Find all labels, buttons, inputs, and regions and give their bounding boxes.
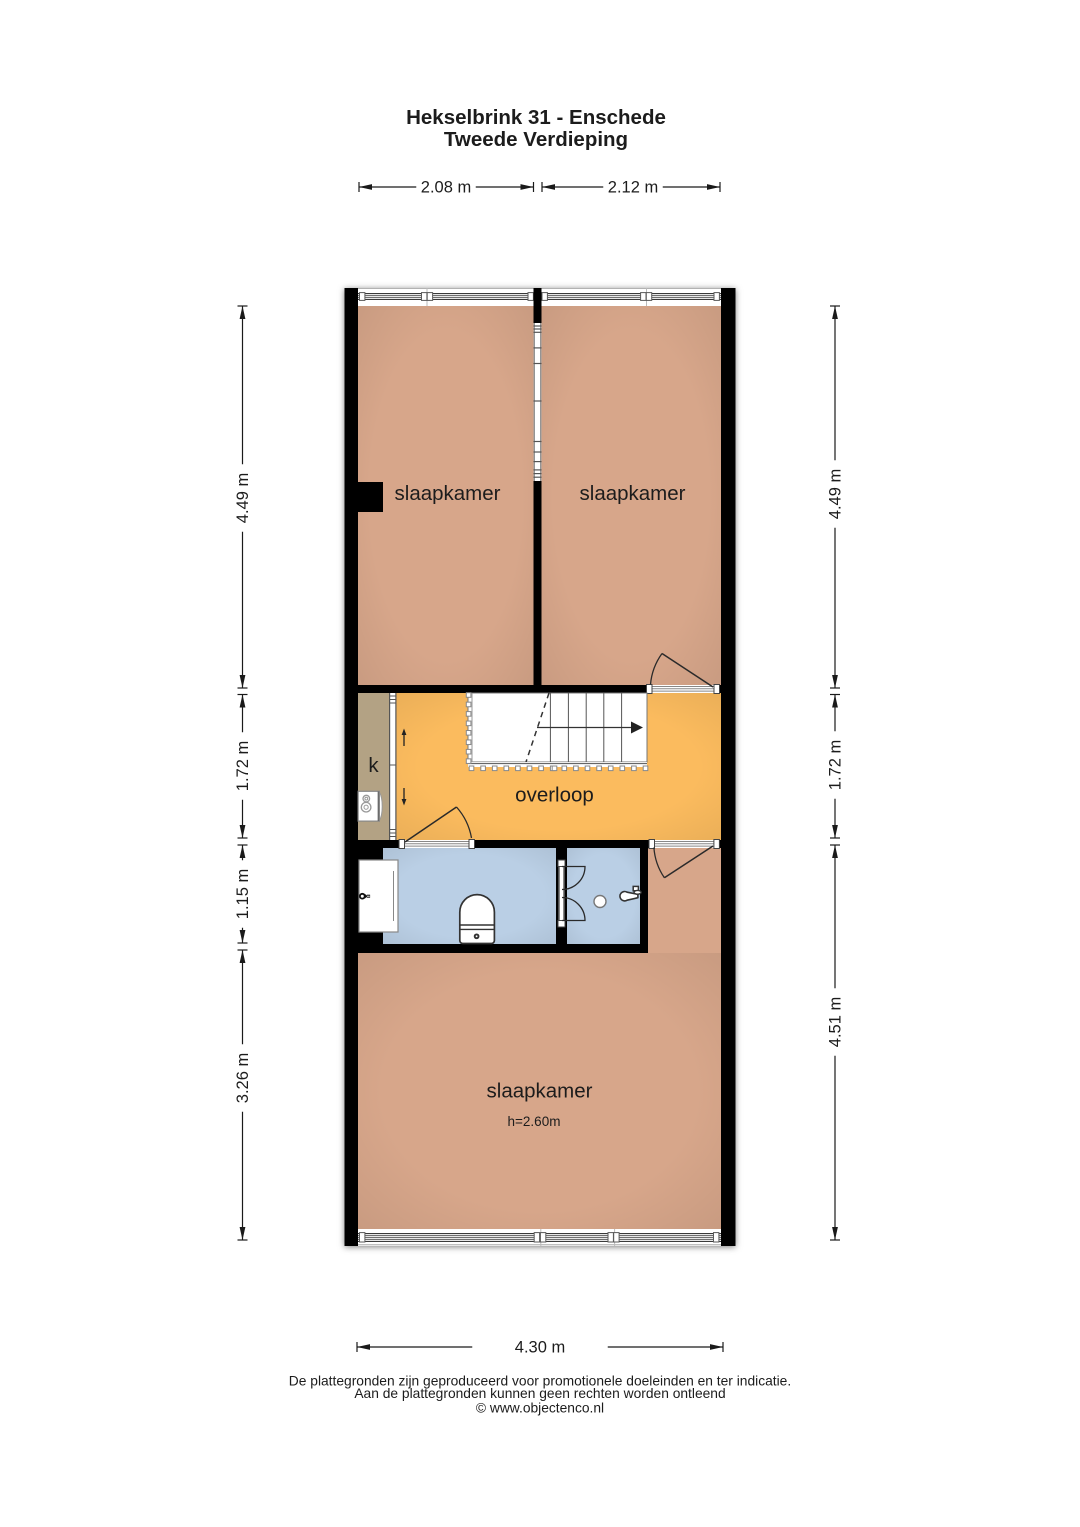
- svg-text:1.72 m: 1.72 m: [234, 741, 252, 791]
- svg-text:slaapkamer: slaapkamer: [487, 1080, 593, 1103]
- svg-text:slaapkamer: slaapkamer: [580, 482, 686, 505]
- svg-text:Tweede Verdieping: Tweede Verdieping: [444, 128, 628, 151]
- svg-text:h=2.60m: h=2.60m: [508, 1114, 561, 1129]
- svg-text:4.51 m: 4.51 m: [827, 997, 845, 1047]
- svg-text:Aan de plattegronden kunnen ge: Aan de plattegronden kunnen geen rechten…: [354, 1386, 725, 1401]
- svg-text:© www.objectenco.nl: © www.objectenco.nl: [476, 1401, 604, 1416]
- svg-text:k: k: [368, 754, 379, 777]
- svg-text:4.49 m: 4.49 m: [827, 469, 845, 519]
- svg-text:2.12 m: 2.12 m: [608, 179, 658, 197]
- svg-text:2.08 m: 2.08 m: [421, 179, 471, 197]
- svg-text:overloop: overloop: [515, 784, 594, 807]
- svg-text:1.15 m: 1.15 m: [234, 869, 252, 919]
- svg-text:4.49 m: 4.49 m: [234, 473, 252, 523]
- svg-text:3.26 m: 3.26 m: [234, 1053, 252, 1103]
- svg-text:slaapkamer: slaapkamer: [395, 482, 501, 505]
- svg-text:4.30 m: 4.30 m: [515, 1339, 565, 1357]
- svg-text:Hekselbrink 31 - Enschede: Hekselbrink 31 - Enschede: [406, 106, 666, 129]
- svg-text:1.72 m: 1.72 m: [827, 740, 845, 790]
